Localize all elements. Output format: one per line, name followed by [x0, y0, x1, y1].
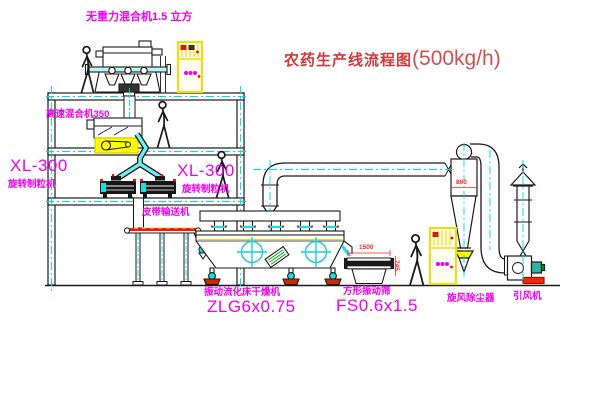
label-granulator-right-name: 旋转制粒机 — [182, 185, 230, 195]
label-screen-model: FS0.6x1.5 — [336, 297, 418, 314]
title-capacity: (500kg/h) — [412, 47, 501, 70]
label-gravity-mixer: 无重力混合机1.5 立方 — [86, 12, 192, 23]
label-fan: 引风机 — [513, 292, 542, 302]
label-belt-conveyor: 皮带输送机 — [142, 208, 190, 218]
vibrating-screen — [344, 250, 396, 284]
label-cyclone: 旋风除尘器 — [447, 294, 495, 304]
title-text: 农药生产线流程图 — [284, 52, 412, 69]
label-high-speed-mixer: 高速混合机350 — [46, 110, 109, 120]
flow-diagram-canvas: 农药生产线流程图(500kg/h) 无重力混合机1.5 立方 高速混合机350 … — [0, 0, 600, 403]
dim-screen-width: 1500 — [359, 245, 373, 252]
label-granulator-left-model: XL-300 — [10, 157, 68, 174]
control-cabinet-top — [178, 42, 202, 92]
gravity-free-mixer — [86, 41, 171, 96]
belt-conveyor — [124, 228, 200, 285]
control-cabinet-bottom — [430, 228, 456, 284]
induced-draft-fan — [508, 160, 545, 284]
high-speed-mixer — [87, 118, 142, 153]
dim-screen-height: 745 — [393, 260, 400, 271]
label-dryer-model: ZLG6x0.75 — [207, 298, 296, 315]
label-granulator-left-name: 旋转制粒机 — [8, 180, 56, 190]
page-title: 农药生产线流程图(500kg/h) — [284, 48, 501, 69]
label-granulator-right-model: XL-300 — [177, 162, 235, 179]
dim-cyclone-inlet: 800 — [456, 180, 467, 187]
fluid-bed-dryer — [196, 211, 352, 285]
